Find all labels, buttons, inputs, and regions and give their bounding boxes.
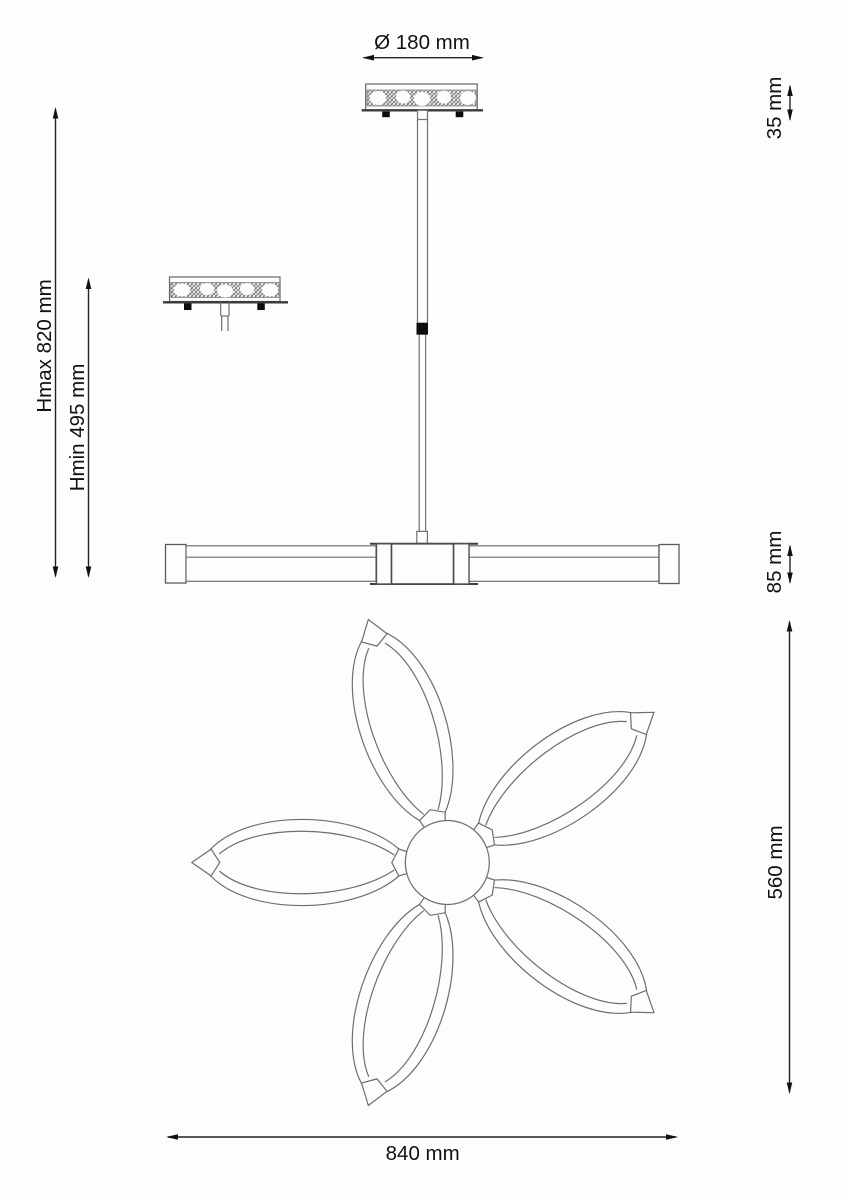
svg-text:560 mm: 560 mm <box>764 825 787 899</box>
svg-text:Hmax 820 mm: Hmax 820 mm <box>33 279 56 412</box>
svg-text:Ø 180 mm: Ø 180 mm <box>374 31 470 54</box>
svg-text:35 mm: 35 mm <box>763 77 786 140</box>
svg-text:85 mm: 85 mm <box>763 531 786 594</box>
svg-text:Hmin 495 mm: Hmin 495 mm <box>66 364 89 492</box>
svg-text:840 mm: 840 mm <box>386 1142 460 1165</box>
